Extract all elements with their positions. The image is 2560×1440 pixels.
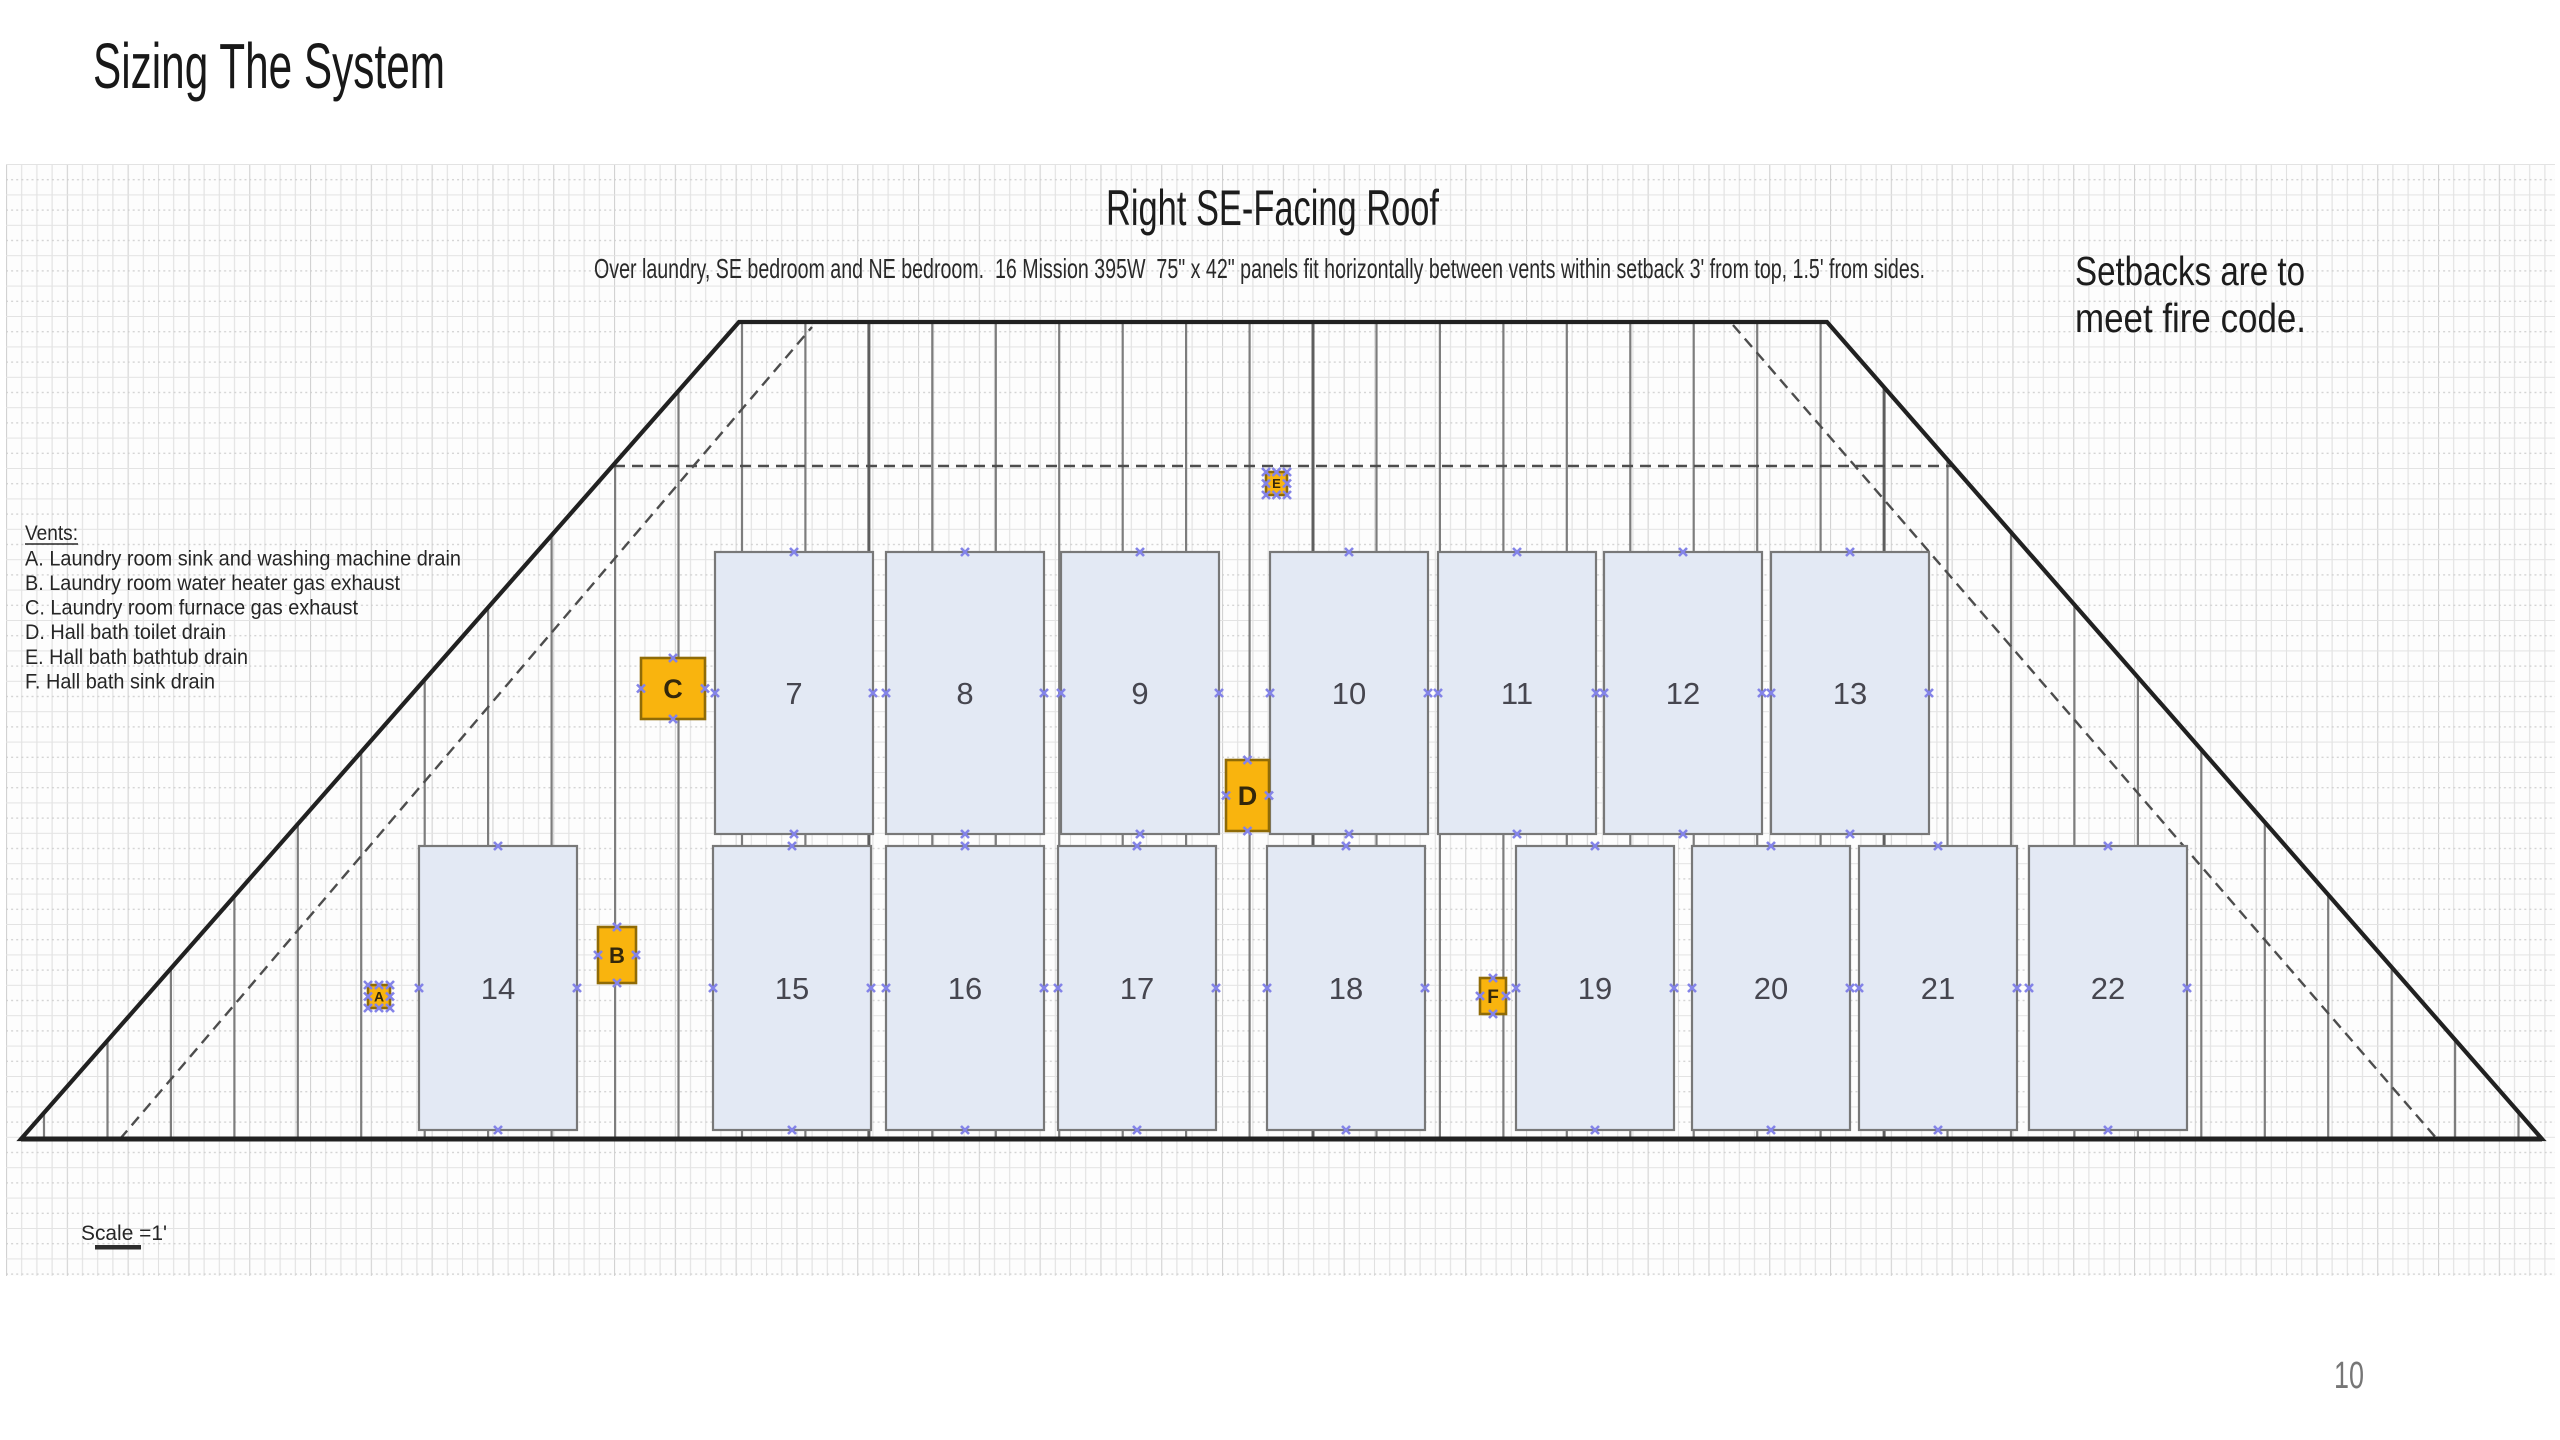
svg-text:7: 7 xyxy=(785,676,802,711)
svg-text:15: 15 xyxy=(775,971,809,1006)
svg-text:13: 13 xyxy=(1833,676,1867,711)
svg-text:19: 19 xyxy=(1578,971,1612,1006)
svg-text:D. Hall bath toilet drain: D. Hall bath toilet drain xyxy=(25,621,226,644)
svg-text:11: 11 xyxy=(1501,676,1533,711)
svg-text:C: C xyxy=(663,674,683,704)
svg-text:9: 9 xyxy=(1131,676,1148,711)
svg-text:Vents:: Vents: xyxy=(25,522,78,545)
svg-text:17: 17 xyxy=(1120,971,1154,1006)
svg-text:Right SE-Facing Roof: Right SE-Facing Roof xyxy=(1106,180,1439,236)
svg-text:B: B xyxy=(609,943,625,968)
svg-text:D: D xyxy=(1238,781,1258,811)
svg-text:10: 10 xyxy=(1332,676,1366,711)
svg-text:Over laundry, SE bedroom and N: Over laundry, SE bedroom and NE bedroom.… xyxy=(594,253,1925,284)
svg-text:meet fire code.: meet fire code. xyxy=(2075,295,2306,341)
svg-text:C. Laundry room furnace gas ex: C. Laundry room furnace gas exhaust xyxy=(25,597,358,620)
svg-text:A. Laundry room sink and washi: A. Laundry room sink and washing machine… xyxy=(25,548,461,571)
svg-text:20: 20 xyxy=(1754,971,1788,1006)
svg-text:Setbacks are to: Setbacks are to xyxy=(2075,248,2305,294)
svg-text:E: E xyxy=(1272,476,1281,491)
svg-text:B. Laundry room water heater g: B. Laundry room water heater gas exhaust xyxy=(25,572,400,595)
svg-text:14: 14 xyxy=(481,971,515,1006)
svg-text:F: F xyxy=(1487,987,1499,1008)
svg-text:F. Hall bath sink drain: F. Hall bath sink drain xyxy=(25,671,215,694)
svg-text:Scale =1': Scale =1' xyxy=(81,1222,167,1245)
svg-text:10: 10 xyxy=(2334,1355,2364,1397)
svg-text:A: A xyxy=(374,989,384,1005)
svg-text:21: 21 xyxy=(1921,971,1955,1006)
svg-text:Sizing The System: Sizing The System xyxy=(93,30,445,102)
svg-text:22: 22 xyxy=(2091,971,2125,1006)
svg-text:8: 8 xyxy=(956,676,973,711)
svg-text:16: 16 xyxy=(948,971,982,1006)
svg-text:E. Hall bath bathtub drain: E. Hall bath bathtub drain xyxy=(25,646,248,669)
svg-text:12: 12 xyxy=(1666,676,1700,711)
svg-text:18: 18 xyxy=(1329,971,1363,1006)
